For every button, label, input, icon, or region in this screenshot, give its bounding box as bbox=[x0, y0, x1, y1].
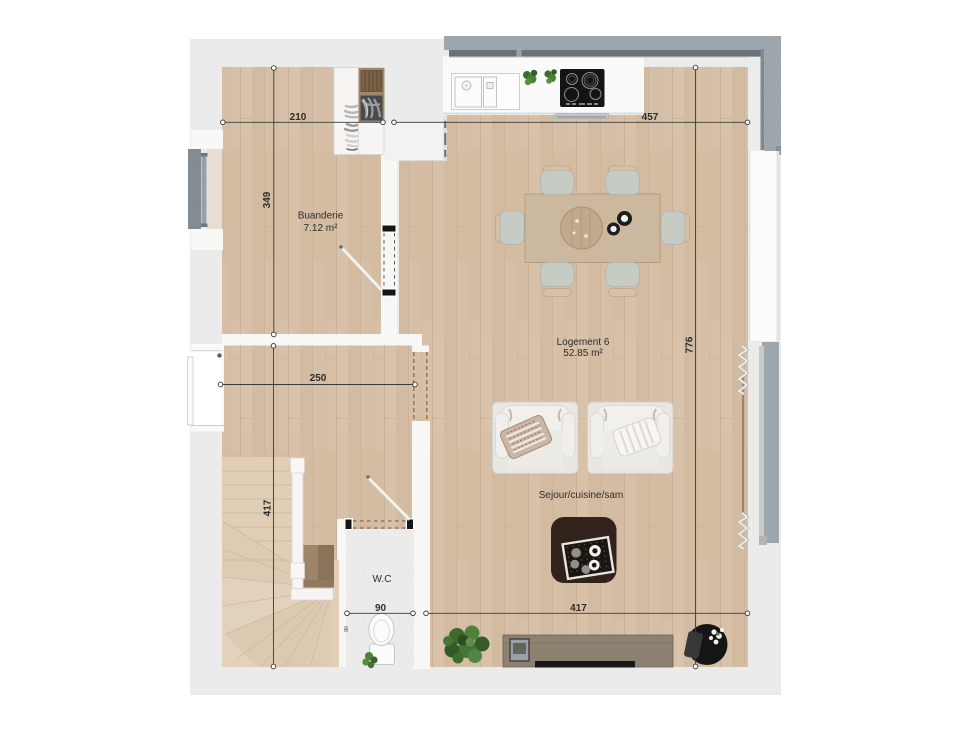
svg-text:7.12 m²: 7.12 m² bbox=[304, 223, 339, 234]
svg-text:776: 776 bbox=[685, 336, 696, 353]
svg-text:417: 417 bbox=[263, 499, 274, 516]
svg-text:W.C: W.C bbox=[373, 574, 392, 585]
svg-text:Buanderie: Buanderie bbox=[298, 211, 344, 222]
svg-text:90: 90 bbox=[344, 626, 350, 632]
svg-text:457: 457 bbox=[642, 112, 659, 123]
svg-text:90: 90 bbox=[375, 603, 387, 614]
svg-text:250: 250 bbox=[310, 373, 327, 384]
svg-text:Sejour/cuisine/sam: Sejour/cuisine/sam bbox=[539, 490, 623, 501]
svg-text:417: 417 bbox=[570, 603, 587, 614]
svg-text:Logement 6: Logement 6 bbox=[557, 337, 610, 348]
svg-text:210: 210 bbox=[290, 112, 307, 123]
svg-text:52.85 m²: 52.85 m² bbox=[563, 348, 603, 359]
svg-text:349: 349 bbox=[262, 191, 273, 208]
